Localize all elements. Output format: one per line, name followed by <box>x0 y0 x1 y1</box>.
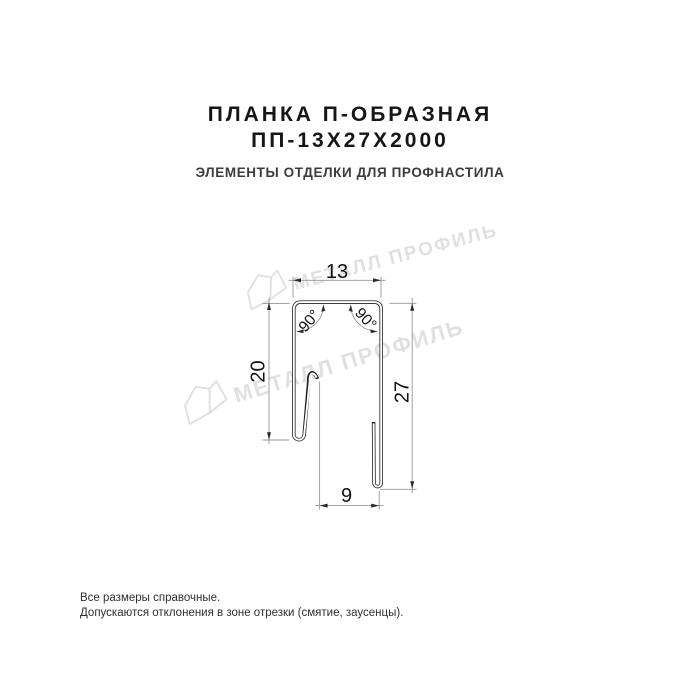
footer-note-line2: Допускаются отклонения в зоне отрезки (с… <box>80 606 403 621</box>
footer-notes: Все размеры справочные. Допускаются откл… <box>80 591 403 621</box>
page-subtitle: ЭЛЕМЕНТЫ ОТДЕЛКИ ДЛЯ ПРОФНАСТИЛА <box>0 165 700 180</box>
page-title-line1: ПЛАНКА П-ОБРАЗНАЯ <box>0 102 700 128</box>
dim-top-width-label: 13 <box>326 261 348 283</box>
footer-note-line1: Все размеры справочные. <box>80 591 403 606</box>
metall-profil-logo-icon <box>173 374 235 436</box>
dim-right-height-label: 27 <box>392 381 414 403</box>
header: ПЛАНКА П-ОБРАЗНАЯ ПП-13Х27Х2000 ЭЛЕМЕНТЫ… <box>0 102 700 180</box>
dim-bottom-width-label: 9 <box>341 485 352 507</box>
page-title-line2: ПП-13Х27Х2000 <box>0 128 700 154</box>
angle-right-label: 90° <box>351 305 379 334</box>
page: ПЛАНКА П-ОБРАЗНАЯ ПП-13Х27Х2000 ЭЛЕМЕНТЫ… <box>0 0 700 700</box>
profile-cross-section-drawing: 13 20 27 9 90° 90° <box>230 250 430 530</box>
dim-left-height-label: 20 <box>248 360 270 382</box>
